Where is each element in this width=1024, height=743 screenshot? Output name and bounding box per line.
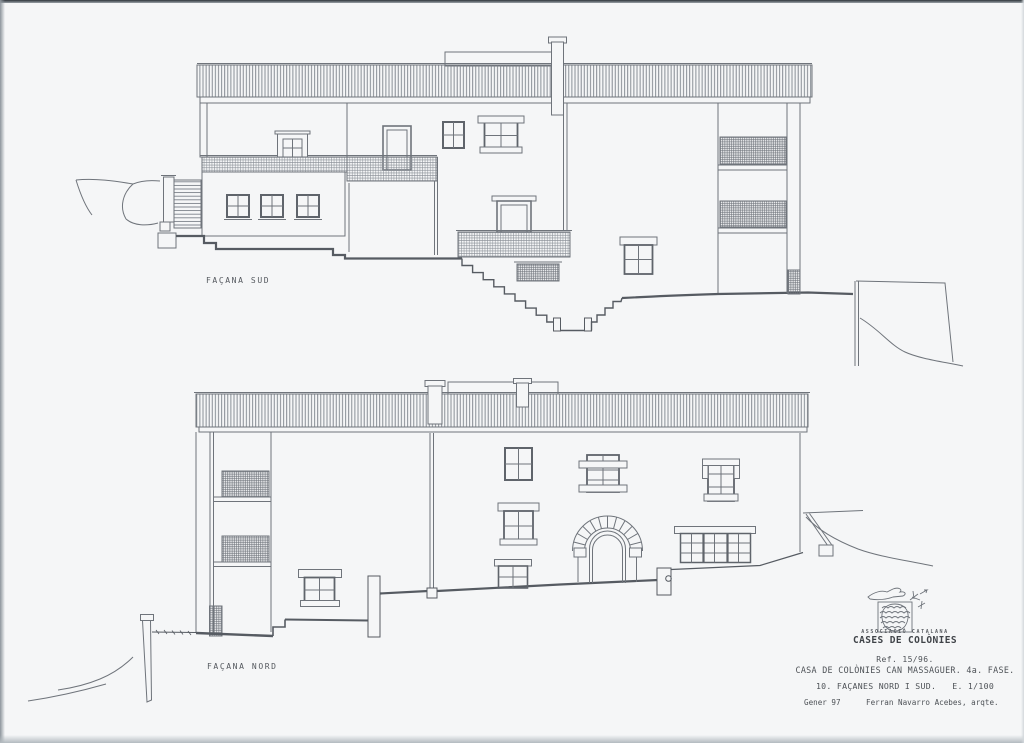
south-left-stair	[158, 176, 201, 249]
north-tower-shutter-1	[222, 471, 269, 497]
north-right-ground	[803, 511, 933, 567]
south-chimney	[552, 42, 564, 115]
north-site-post	[141, 615, 154, 703]
south-tower-vent	[788, 270, 800, 294]
south-shuttered-window-low	[514, 262, 562, 281]
south-roof	[197, 37, 812, 115]
south-retaining-wall	[855, 281, 963, 366]
title-block: ASSOCIACIÓ CATALANA CASES DE COLÒNIES Re…	[760, 629, 1024, 708]
scanned-plan-sheet: FAÇANA SUD FAÇANA NORD ASSOCIACIÓ CATALA…	[0, 0, 1024, 743]
north-facade-label: FAÇANA NORD	[207, 662, 278, 671]
north-tripartite-window	[675, 527, 756, 563]
north-wall-pillar	[368, 576, 380, 637]
south-facade-drawing	[76, 37, 963, 366]
north-window-2	[579, 455, 627, 492]
south-window-b	[478, 116, 524, 153]
south-stairs-up	[592, 298, 623, 331]
north-window-1	[505, 448, 532, 480]
south-terrace-railing	[200, 156, 349, 173]
north-window-3	[703, 459, 740, 501]
date-label: Gener 97	[804, 698, 841, 707]
north-rocks	[28, 657, 133, 701]
south-terrace-railing-2	[347, 156, 437, 182]
north-window-6	[495, 560, 532, 589]
architect-label: Ferran Navarro Acebes, arqte.	[866, 698, 999, 707]
north-tower-shutter-2	[222, 536, 269, 562]
title-block-footer: Gener 97 Ferran Navarro Acebes, arqte.	[760, 698, 1024, 708]
north-strut	[806, 514, 832, 547]
project-title: CASA DE COLÒNIES CAN MASSAGUER. 4a. FASE…	[760, 665, 1024, 675]
pine-branch-icon	[868, 588, 905, 599]
south-window-c	[620, 237, 657, 274]
north-chimney-1	[428, 386, 442, 424]
south-balcony	[456, 196, 572, 257]
north-ground-profile	[152, 553, 803, 638]
north-left-tower	[196, 432, 271, 636]
north-arched-entrance	[573, 516, 643, 583]
scan-edge-top	[0, 0, 1024, 3]
south-tower-shutter-2	[718, 201, 787, 233]
scan-edge-left	[0, 0, 5, 743]
sheet-number-label: 10. FAÇANES NORD I SUD.	[816, 681, 936, 691]
pine-cone-logo	[868, 588, 927, 632]
north-roof	[194, 379, 810, 433]
south-window-a	[443, 122, 464, 148]
south-rocks	[76, 179, 160, 225]
south-facade-label: FAÇANA SUD	[206, 276, 270, 285]
north-chimney-2	[517, 383, 529, 407]
association-name: CASES DE COLÒNIES	[760, 635, 1024, 646]
reference-number: Ref. 15/96.	[760, 655, 1024, 664]
south-tower-shutter-1	[718, 137, 787, 170]
sheet-title: 10. FAÇANES NORD I SUD.E. 1/100	[760, 681, 1024, 691]
north-window-4	[498, 503, 539, 545]
south-left-wing	[202, 172, 345, 236]
north-tower-vent	[210, 606, 223, 636]
south-terrace-dormer	[275, 131, 310, 157]
north-window-5	[299, 570, 342, 607]
pine-sprig-icon	[910, 590, 927, 609]
scale-label: E. 1/100	[952, 681, 994, 691]
scan-edge-bottom	[0, 735, 1024, 743]
